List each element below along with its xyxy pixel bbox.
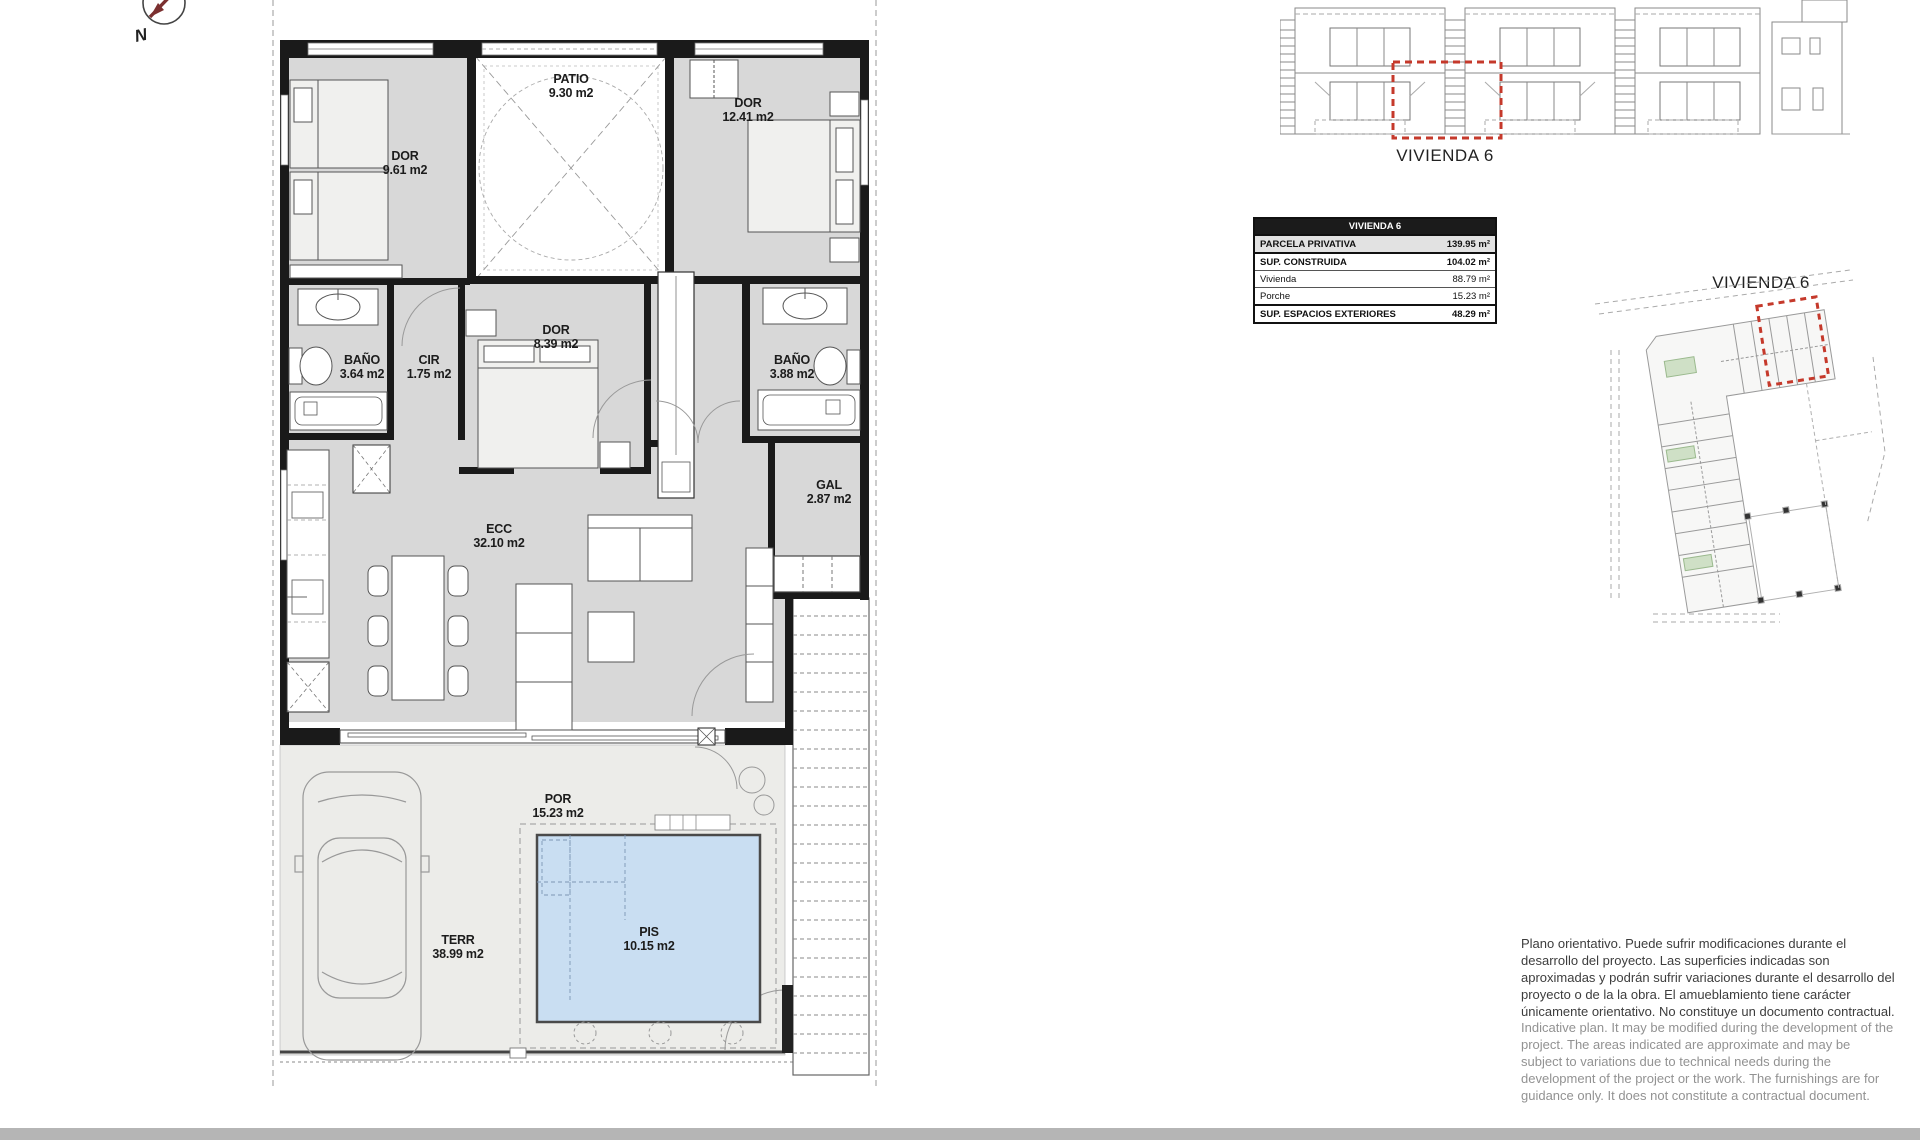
label-bano2: BAÑO3.88 m2 [770,353,814,381]
label-bano1: BAÑO3.64 m2 [340,353,384,381]
dining-table [368,556,468,700]
label-dor2: DOR12.41 m2 [722,96,773,124]
table-row: SUP. ESPACIOS EXTERIORES48.29 m² [1254,305,1496,323]
elevation-drawing [1280,0,1855,170]
label-dor1: DOR9.61 m2 [383,149,427,177]
gallery-closet [774,556,860,592]
table-row: Porche15.23 m² [1254,288,1496,306]
summary-table: VIVIENDA 6 PARCELA PRIVATIVA139.95 m² SU… [1253,217,1497,324]
north-label: N [133,25,150,46]
stair-tower-hatch [1280,20,1635,134]
label-cir: CIR1.75 m2 [407,353,451,381]
label-ecc: ECC32.10 m2 [473,522,524,550]
unit-3 [1635,8,1760,134]
table-row: Vivienda88.79 m² [1254,271,1496,288]
unit-2 [1465,8,1615,134]
label-pis: PIS10.15 m2 [623,925,674,953]
north-arrow-icon: N [112,0,222,60]
disclaimer-spanish: Plano orientativo. Puede sufrir modifica… [1521,936,1895,1020]
side-building [1772,0,1850,134]
table-row: PARCELA PRIVATIVA139.95 m² [1254,235,1496,253]
disclaimer-english: Indicative plan. It may be modified duri… [1521,1020,1895,1104]
corridor-closet [658,272,694,498]
unit-1 [1295,8,1445,134]
staircase [793,598,869,1075]
label-patio: PATIO9.30 m2 [549,72,593,100]
tv-unit [746,548,773,702]
bedroom1-furniture [290,80,402,278]
footer-bar [0,1128,1920,1140]
entry-post [782,985,793,1053]
table-header-row: VIVIENDA 6 [1254,218,1496,235]
floor-plan-drawing [270,0,880,1090]
label-por: POR15.23 m2 [532,792,583,820]
plan-sheet: N [0,0,1920,1140]
site-building [1644,310,1867,613]
table-row: SUP. CONSTRUIDA104.02 m² [1254,253,1496,271]
elevation-caption: VIVIENDA 6 [1396,146,1494,166]
disclaimer: Plano orientativo. Puede sufrir modifica… [1521,936,1895,1105]
label-gal: GAL2.87 m2 [807,478,851,506]
label-dor3: DOR8.39 m2 [534,323,578,351]
label-terr: TERR38.99 m2 [432,933,483,961]
site-plan-drawing [1585,262,1905,682]
